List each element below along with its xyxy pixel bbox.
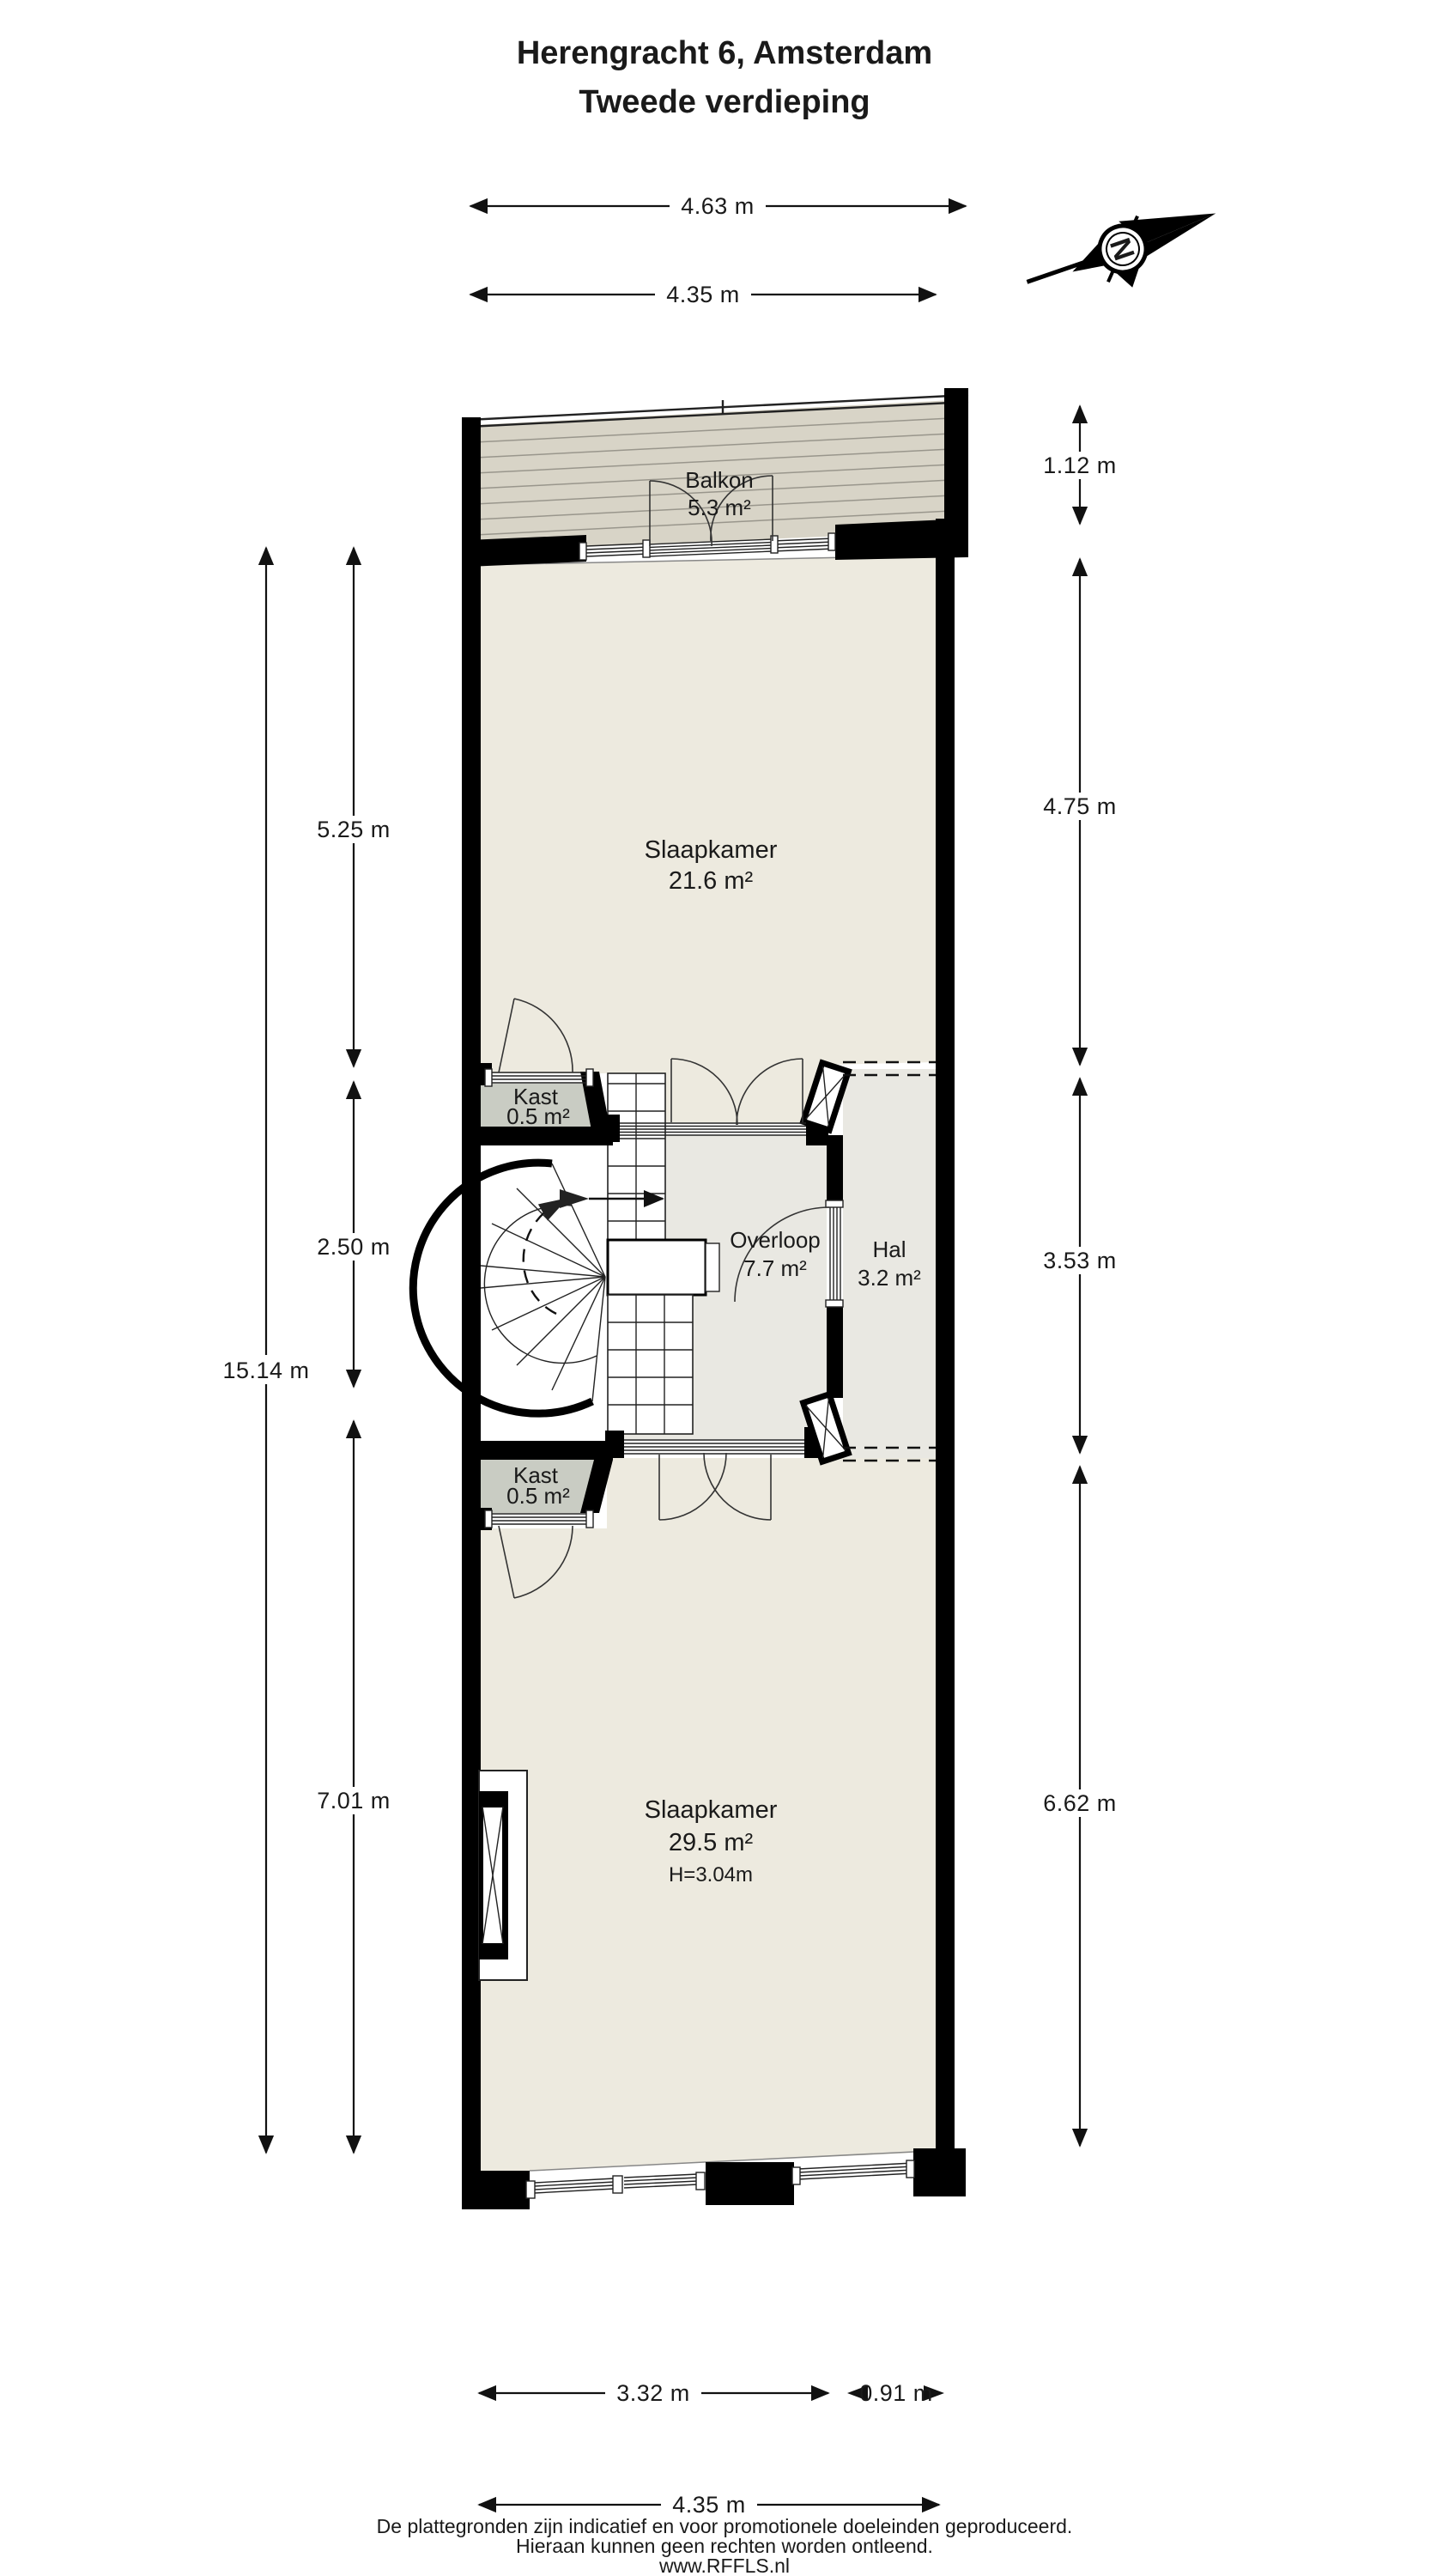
dim-right-lower: 6.62 m — [1043, 1790, 1117, 1816]
window-bottom-3 — [798, 2163, 913, 2179]
stair-landing — [608, 1240, 706, 1295]
label-balkon-name: Balkon — [685, 467, 754, 493]
dim-right-balcony: 1.12 m — [1043, 453, 1117, 478]
wall-kast1-bottom — [477, 1127, 613, 1145]
wall-front-right — [835, 519, 968, 560]
disclaimer-line-2: Hieraan kunnen geen rechten worden ontle… — [0, 2537, 1449, 2556]
label-slaapkamer2-height: H=3.04m — [669, 1863, 753, 1886]
dim-left-upper: 5.25 m — [317, 817, 391, 842]
label-kast2-area: 0.5 m² — [506, 1483, 570, 1509]
wall-front-left — [468, 535, 586, 567]
stair-landing-edge — [706, 1243, 719, 1291]
wall-right — [936, 519, 955, 2164]
label-slaapkamer2-name: Slaapkamer — [645, 1796, 778, 1824]
window-bottom-1 — [535, 2178, 615, 2193]
dim-right-upper: 4.75 m — [1043, 793, 1117, 819]
floorplan-svg: Balkon 5.3 m² Slaapkamer 21.6 m² Kast 0.… — [0, 0, 1449, 2576]
wall-hal-upper — [827, 1135, 843, 1207]
label-overloop-area: 7.7 m² — [743, 1255, 807, 1281]
label-slaapkamer2-area: 29.5 m² — [669, 1829, 754, 1856]
window-front-right — [773, 538, 834, 551]
dim-bottom-left: 3.32 m — [616, 2380, 690, 2406]
dim-bottom-right: 0.91 m — [859, 2380, 933, 2406]
label-kast1-area: 0.5 m² — [506, 1103, 570, 1129]
window-bottom-2 — [624, 2174, 698, 2188]
floorplan-page: Herengracht 6, Amsterdam Tweede verdiepi… — [0, 0, 1449, 2576]
dim-left-total: 15.14 m — [222, 1358, 309, 1383]
dim-left-middle: 2.50 m — [317, 1234, 391, 1260]
wall-kast2-top — [477, 1441, 613, 1460]
dim-right-middle: 3.53 m — [1043, 1248, 1117, 1273]
chimney-breast — [479, 1771, 527, 1980]
wall-bottom-middle — [706, 2162, 794, 2205]
wall-balcony-right — [944, 388, 968, 524]
label-slaapkamer1-area: 21.6 m² — [669, 867, 754, 895]
label-slaapkamer1-name: Slaapkamer — [645, 836, 778, 864]
dim-top-inner: 4.35 m — [666, 282, 740, 307]
wall-bottom-left-corner — [462, 2171, 530, 2209]
dim-left-lower: 7.01 m — [317, 1788, 391, 1814]
disclaimer-line-3: www.RFFLS.nl — [0, 2556, 1449, 2576]
window-front-left — [586, 544, 648, 556]
wall-hal-lower — [827, 1300, 843, 1398]
disclaimer-line-1: De plattegronden zijn indicatief en voor… — [0, 2517, 1449, 2537]
dim-top-outer: 4.63 m — [681, 193, 755, 219]
wall-lower-partition-left-jamb — [605, 1431, 624, 1458]
label-overloop-name: Overloop — [730, 1227, 821, 1253]
wall-bottom-right-corner — [913, 2148, 966, 2196]
wall-left — [462, 417, 481, 2209]
straight-stair-lower — [608, 1295, 693, 1434]
label-balkon-area: 5.3 m² — [688, 495, 751, 520]
dim-bottom-total: 4.35 m — [672, 2492, 746, 2518]
wall-partition-left-jamb — [605, 1115, 620, 1142]
label-hal-name: Hal — [872, 1236, 906, 1262]
compass-icon: N — [1018, 191, 1230, 319]
disclaimer: De plattegronden zijn indicatief en voor… — [0, 2517, 1449, 2576]
label-hal-area: 3.2 m² — [858, 1265, 921, 1291]
